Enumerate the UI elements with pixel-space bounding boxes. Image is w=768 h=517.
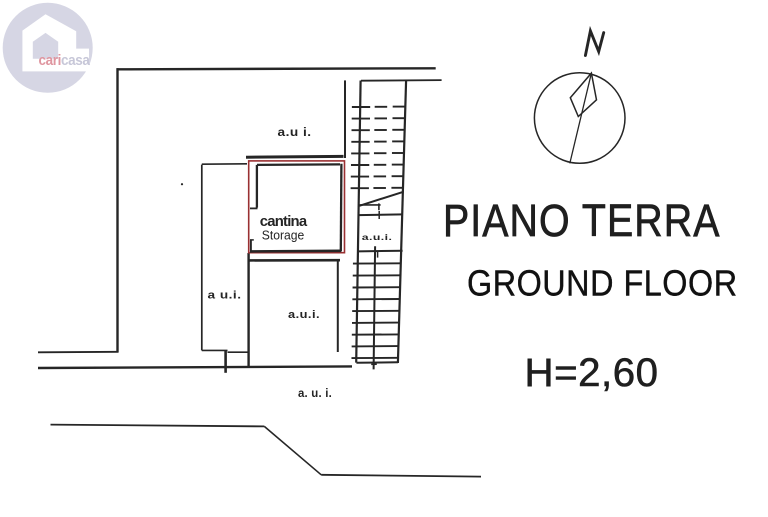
svg-text:Storage: Storage [262, 228, 305, 242]
svg-text:a.u.i.: a.u.i. [362, 232, 393, 242]
svg-text:GROUND FLOOR: GROUND FLOOR [467, 263, 738, 304]
svg-text:a u.i.: a u.i. [208, 290, 242, 302]
svg-text:a.u.i.: a.u.i. [288, 309, 320, 321]
svg-text:caricasa: caricasa [39, 53, 91, 69]
svg-text:H=2,60: H=2,60 [525, 351, 659, 395]
svg-text:a.u i.: a.u i. [278, 127, 312, 139]
svg-text:PIANO TERRA: PIANO TERRA [443, 195, 721, 246]
svg-text:a. u. i.: a. u. i. [298, 388, 332, 400]
